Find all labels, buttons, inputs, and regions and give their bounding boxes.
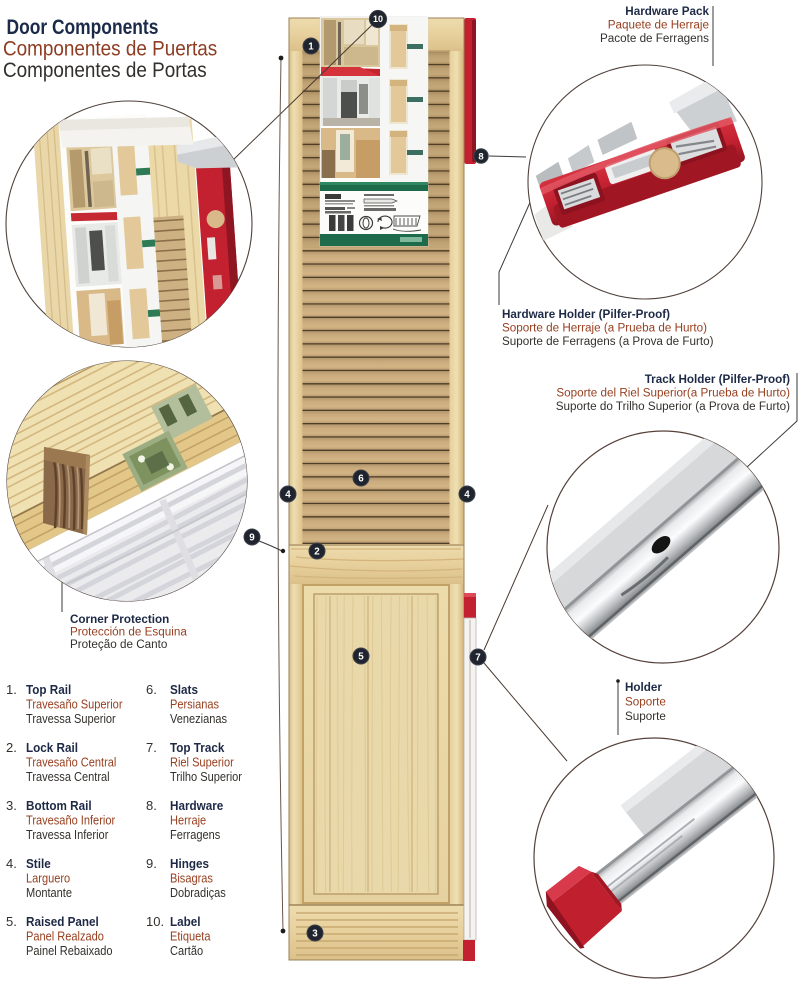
svg-text:8.: 8. bbox=[146, 798, 157, 813]
svg-text:Holder: Holder bbox=[625, 680, 662, 694]
svg-text:5: 5 bbox=[358, 652, 364, 663]
svg-text:Lock Rail: Lock Rail bbox=[26, 740, 78, 755]
svg-text:Larguero: Larguero bbox=[26, 871, 70, 886]
svg-text:Paquete de Herraje: Paquete de Herraje bbox=[608, 17, 710, 31]
svg-text:Travessa Inferior: Travessa Inferior bbox=[26, 827, 108, 842]
svg-text:Suporte: Suporte bbox=[625, 709, 666, 723]
svg-text:Stile: Stile bbox=[26, 856, 51, 871]
svg-text:Travesaño Central: Travesaño Central bbox=[26, 755, 116, 770]
svg-text:Track Holder (Pilfer-Proof): Track Holder (Pilfer-Proof) bbox=[645, 372, 790, 386]
svg-text:Bottom Rail: Bottom Rail bbox=[26, 798, 92, 813]
svg-text:Ferragens: Ferragens bbox=[170, 827, 220, 842]
svg-text:7: 7 bbox=[475, 653, 481, 664]
svg-text:Hinges: Hinges bbox=[170, 856, 209, 871]
svg-text:6.: 6. bbox=[146, 682, 157, 697]
svg-text:Painel Rebaixado: Painel Rebaixado bbox=[26, 943, 113, 958]
svg-text:Top Track: Top Track bbox=[170, 740, 224, 755]
svg-text:1: 1 bbox=[308, 42, 314, 53]
svg-text:Proteção de Canto: Proteção de Canto bbox=[70, 637, 168, 651]
svg-text:6: 6 bbox=[358, 474, 364, 485]
svg-text:Travessa Superior: Travessa Superior bbox=[26, 711, 116, 726]
svg-text:3: 3 bbox=[312, 929, 318, 940]
svg-text:Travessa Central: Travessa Central bbox=[26, 769, 110, 784]
svg-text:Persianas: Persianas bbox=[170, 697, 219, 712]
svg-text:4.: 4. bbox=[6, 856, 17, 871]
svg-text:Hardware: Hardware bbox=[170, 798, 223, 813]
svg-text:1.: 1. bbox=[6, 682, 17, 697]
svg-text:9: 9 bbox=[249, 533, 255, 544]
svg-text:8: 8 bbox=[478, 151, 483, 162]
svg-text:4: 4 bbox=[285, 490, 291, 501]
svg-text:Herraje: Herraje bbox=[170, 813, 206, 828]
svg-text:Componentes de Portas: Componentes de Portas bbox=[3, 59, 207, 82]
svg-text:Venezianas: Venezianas bbox=[170, 711, 227, 726]
svg-text:Door Components: Door Components bbox=[7, 17, 159, 40]
svg-text:4: 4 bbox=[464, 490, 470, 501]
svg-text:Bisagras: Bisagras bbox=[170, 871, 213, 886]
svg-text:Label: Label bbox=[170, 914, 201, 929]
svg-text:Dobradiças: Dobradiças bbox=[170, 885, 226, 900]
svg-text:Raised Panel: Raised Panel bbox=[26, 914, 99, 929]
svg-text:10: 10 bbox=[373, 14, 383, 24]
svg-text:2: 2 bbox=[314, 547, 320, 558]
svg-text:Travesaño Inferior: Travesaño Inferior bbox=[26, 813, 115, 828]
svg-text:Suporte do Trilho Superior (a: Suporte do Trilho Superior (a Prova de F… bbox=[556, 399, 790, 413]
svg-text:Top Rail: Top Rail bbox=[26, 682, 71, 697]
svg-text:3.: 3. bbox=[6, 798, 17, 813]
svg-text:7.: 7. bbox=[146, 740, 157, 755]
svg-text:Riel Superior: Riel Superior bbox=[170, 755, 234, 770]
svg-text:Soporte del Riel Superior(a Pr: Soporte del Riel Superior(a Prueba de Hu… bbox=[556, 385, 790, 399]
svg-text:Trilho Superior: Trilho Superior bbox=[170, 769, 242, 784]
svg-text:Travesaño Superior: Travesaño Superior bbox=[26, 697, 123, 712]
svg-text:Hardware Holder (Pilfer-Proof): Hardware Holder (Pilfer-Proof) bbox=[502, 307, 670, 321]
svg-text:Pacote de Ferragens: Pacote de Ferragens bbox=[600, 31, 709, 45]
svg-text:Soporte: Soporte bbox=[625, 694, 666, 708]
svg-text:Slats: Slats bbox=[170, 682, 198, 697]
svg-text:10.: 10. bbox=[146, 914, 164, 929]
svg-text:Etiqueta: Etiqueta bbox=[170, 929, 211, 944]
svg-text:Componentes de Puertas: Componentes de Puertas bbox=[3, 38, 217, 61]
svg-text:5.: 5. bbox=[6, 914, 17, 929]
svg-text:9.: 9. bbox=[146, 856, 157, 871]
svg-text:Montante: Montante bbox=[26, 885, 72, 900]
svg-text:2.: 2. bbox=[6, 740, 17, 755]
svg-text:Cartão: Cartão bbox=[170, 943, 203, 958]
svg-text:Hardware Pack: Hardware Pack bbox=[625, 4, 709, 18]
svg-text:Suporte de Ferragens (a Prova: Suporte de Ferragens (a Prova de Furto) bbox=[502, 334, 714, 348]
svg-text:Panel Realzado: Panel Realzado bbox=[26, 929, 104, 944]
svg-text:Soporte de Herraje (a Prueba d: Soporte de Herraje (a Prueba de Hurto) bbox=[502, 320, 707, 334]
